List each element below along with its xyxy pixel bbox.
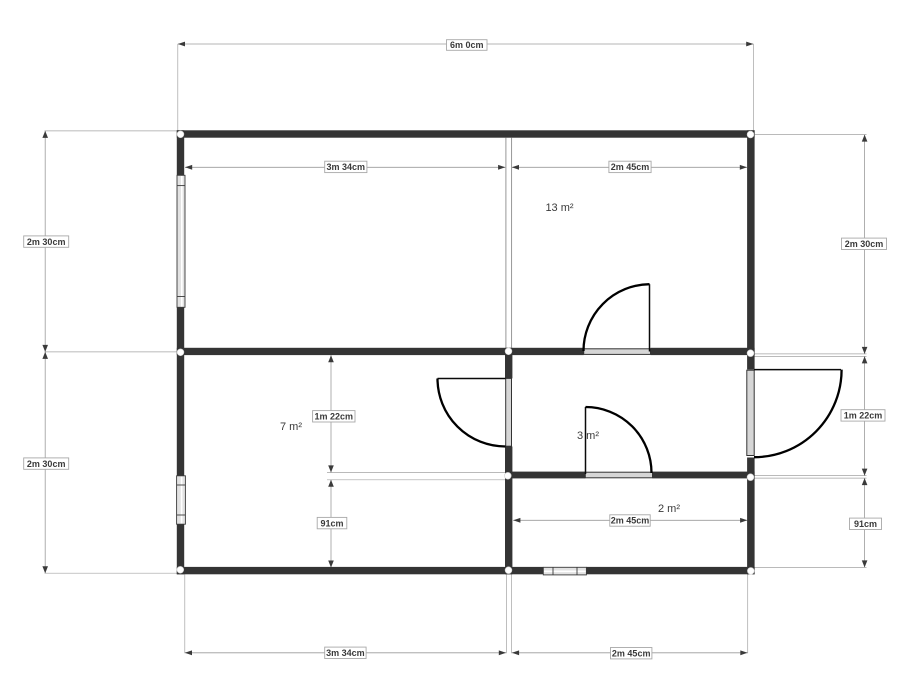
svg-text:91cm: 91cm (320, 518, 343, 528)
svg-text:7 m²: 7 m² (280, 421, 302, 433)
svg-text:3m 34cm: 3m 34cm (326, 648, 365, 658)
svg-text:2m 45cm: 2m 45cm (612, 648, 651, 658)
svg-text:3m 34cm: 3m 34cm (327, 162, 366, 172)
svg-text:1m 22cm: 1m 22cm (315, 412, 354, 422)
svg-text:2m 30cm: 2m 30cm (845, 239, 884, 249)
svg-text:3 m²: 3 m² (577, 430, 599, 442)
svg-text:91cm: 91cm (854, 519, 877, 529)
svg-text:2 m²: 2 m² (658, 503, 680, 515)
svg-text:1m 22cm: 1m 22cm (844, 411, 883, 421)
svg-text:2m 45cm: 2m 45cm (611, 162, 650, 172)
svg-text:6m 0cm: 6m 0cm (450, 40, 484, 50)
svg-text:2m 30cm: 2m 30cm (27, 459, 66, 469)
svg-text:2m 30cm: 2m 30cm (27, 237, 66, 247)
svg-text:13 m²: 13 m² (545, 202, 573, 214)
svg-text:2m 45cm: 2m 45cm (611, 516, 650, 526)
